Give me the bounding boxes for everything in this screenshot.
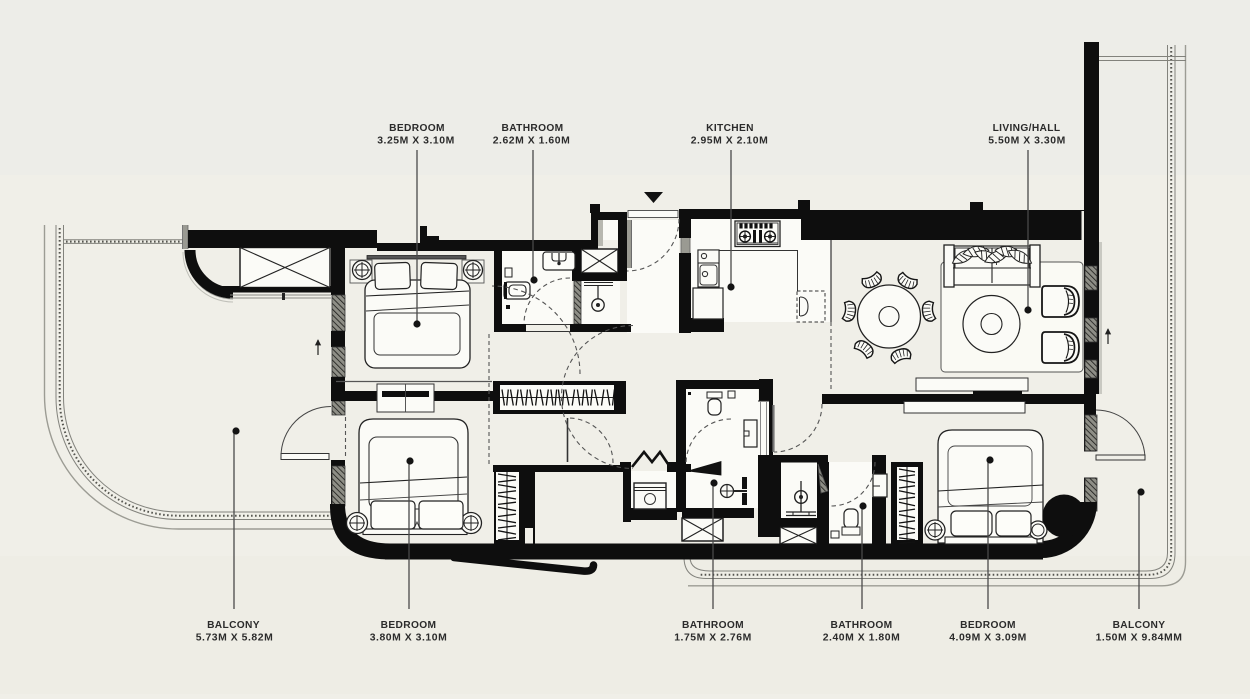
svg-text:2.62M X 1.60M: 2.62M X 1.60M: [493, 136, 571, 147]
svg-text:BATHROOM: BATHROOM: [830, 620, 892, 631]
svg-text:KITCHEN: KITCHEN: [706, 123, 754, 134]
svg-text:BEDROOM: BEDROOM: [389, 123, 445, 134]
svg-text:BALCONY: BALCONY: [1113, 620, 1166, 631]
svg-text:1.50M X 9.84MM: 1.50M X 9.84MM: [1096, 632, 1183, 643]
svg-text:LIVING/HALL: LIVING/HALL: [993, 123, 1061, 134]
svg-text:2.40M X 1.80M: 2.40M X 1.80M: [823, 632, 901, 643]
svg-text:BEDROOM: BEDROOM: [381, 620, 437, 631]
svg-text:3.25M X 3.10M: 3.25M X 3.10M: [377, 136, 455, 147]
svg-text:5.50M X 3.30M: 5.50M X 3.30M: [988, 136, 1066, 147]
svg-text:BATHROOM: BATHROOM: [682, 620, 744, 631]
svg-text:4.09M X 3.09M: 4.09M X 3.09M: [949, 632, 1027, 643]
svg-text:BALCONY: BALCONY: [207, 620, 260, 631]
svg-text:2.95M X 2.10M: 2.95M X 2.10M: [691, 136, 769, 147]
svg-text:BEDROOM: BEDROOM: [960, 620, 1016, 631]
svg-text:BATHROOM: BATHROOM: [501, 123, 563, 134]
svg-text:3.80M X 3.10M: 3.80M X 3.10M: [370, 632, 448, 643]
svg-text:1.75M X 2.76M: 1.75M X 2.76M: [674, 632, 752, 643]
svg-text:5.73M X 5.82M: 5.73M X 5.82M: [196, 632, 274, 643]
